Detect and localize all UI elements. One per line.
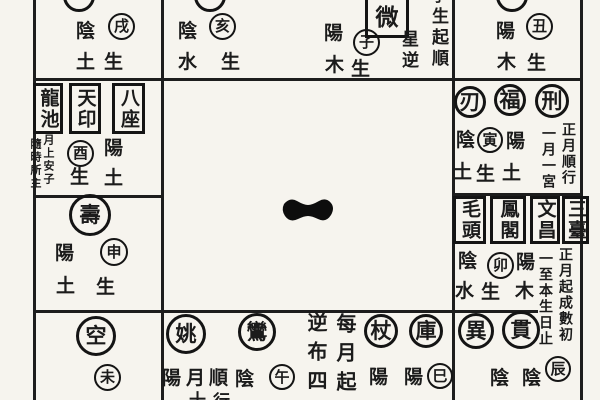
wenchang-box: 文昌	[530, 196, 560, 244]
chen-polarity-1: 陰	[490, 369, 509, 388]
star-shou-circle: 壽	[69, 194, 111, 236]
branch-chen: 辰	[550, 362, 565, 377]
santai-box: 三臺	[562, 196, 589, 244]
grid-vline-left-column	[161, 0, 164, 400]
shen-polarity: 陽	[55, 244, 74, 263]
yin-polarity-left: 陰	[456, 131, 475, 150]
longchi-label: 龍池	[39, 88, 58, 130]
bazuo-label: 八座	[119, 88, 138, 130]
wei-star-label: 微	[376, 7, 399, 30]
grid-hline-top-row	[33, 78, 582, 81]
bazuo-box: 八座	[112, 83, 145, 134]
branch-yin: 寅	[482, 133, 497, 148]
chou-polarity: 陽	[496, 22, 515, 41]
note-until-birth-day: 一至本生日止	[538, 251, 552, 347]
star-guan: 貫	[511, 320, 532, 341]
yin-element-left: 土	[453, 163, 472, 182]
xu-element: 土	[76, 53, 95, 72]
note-mei-yue-qi: 每月起	[335, 313, 355, 400]
maotou-box: 毛頭	[453, 196, 486, 244]
you-sheng: 生	[70, 168, 89, 187]
si-polarity-1: 陽	[369, 368, 388, 387]
note-partial-char: 子	[431, 0, 446, 7]
ink-blot	[281, 197, 335, 223]
branch-wei-circle: 未	[94, 364, 121, 391]
branch-mao-circle: 卯	[487, 252, 514, 279]
branch-shen: 申	[106, 245, 121, 260]
star-shou: 壽	[80, 205, 101, 226]
cut-text-fragment: 行	[213, 394, 230, 400]
star-xing: 刑	[542, 91, 563, 112]
branch-chen-circle: 辰	[545, 356, 571, 382]
note-one-month-one-palace: 一月一宮	[541, 126, 555, 190]
branch-wei: 未	[100, 370, 115, 385]
star-luan-circle: 鸞	[238, 313, 276, 351]
note-first-month-forward: 正月順行	[561, 122, 575, 186]
star-fu-circle: 福	[494, 84, 526, 116]
grid-hline-bottom-row	[33, 310, 538, 313]
hai-polarity: 陰	[178, 22, 197, 41]
si-polarity-2: 陽	[404, 368, 423, 387]
shen-sheng: 生	[96, 278, 115, 297]
star-fu: 福	[500, 90, 521, 111]
chen-polarity-2: 陰	[522, 369, 541, 388]
note-xing-ni: 星逆	[399, 30, 416, 72]
wu-char-4: 陰	[235, 370, 254, 389]
branch-shen-circle: 申	[100, 238, 128, 266]
chou-sheng: 生	[527, 54, 546, 73]
fengge-box: 鳳閣	[490, 196, 526, 244]
branch-hai-circle: 亥	[209, 13, 236, 40]
tianyin-box: 天印	[69, 83, 101, 134]
mao-polarity-left: 陰	[458, 252, 477, 271]
branch-xu-circle: 戌	[108, 13, 135, 40]
shen-element: 土	[56, 277, 75, 296]
mao-element-left: 水	[455, 282, 474, 301]
zi-element: 木	[325, 56, 344, 75]
note-count-from-first-month: 正月起成數初	[558, 247, 572, 343]
note-sheng-qi-shun: 生起順	[429, 7, 446, 70]
branch-yin-circle: 寅	[477, 127, 503, 153]
cut-star-circle	[496, 0, 528, 12]
yin-sheng: 生	[476, 165, 495, 184]
star-ku: 庫	[416, 321, 437, 342]
wenchang-label: 文昌	[536, 199, 555, 241]
star-yi: 異	[466, 321, 487, 342]
star-kong: 空	[86, 326, 107, 347]
zi-sheng: 生	[351, 60, 370, 79]
branch-you: 酉	[73, 146, 88, 161]
xu-sheng: 生	[104, 53, 123, 72]
star-yao-circle: 姚	[166, 314, 206, 354]
branch-xu: 戌	[114, 19, 129, 34]
chou-element: 木	[497, 53, 516, 72]
cut-star-circle	[194, 0, 226, 12]
xu-polarity: 陰	[76, 22, 95, 41]
star-zhang: 杖	[371, 321, 392, 342]
cut-star-circle	[63, 0, 95, 12]
star-ren: 刃	[460, 92, 481, 113]
star-yao: 姚	[176, 324, 197, 345]
mao-element-right: 木	[515, 282, 534, 301]
star-guan-circle: 貫	[502, 311, 540, 349]
hai-sheng: 生	[221, 53, 240, 72]
longchi-box: 龍池	[33, 83, 63, 134]
tianyin-label: 天印	[76, 88, 95, 130]
hai-element: 水	[178, 53, 197, 72]
wu-char-2: 月	[186, 369, 205, 388]
branch-si-circle: 巳	[427, 363, 453, 389]
branch-mao: 卯	[493, 258, 508, 273]
star-yi-circle: 異	[458, 313, 494, 349]
note-small-right: 月上安子	[43, 134, 54, 186]
yin-element-right: 土	[502, 164, 521, 183]
star-kong-circle: 空	[76, 316, 116, 356]
santai-label: 三臺	[566, 199, 585, 241]
fengge-label: 鳳閣	[499, 199, 518, 241]
branch-chou: 丑	[532, 19, 547, 34]
branch-si: 巳	[432, 369, 447, 384]
star-luan: 鸞	[247, 322, 268, 343]
mao-sheng: 生	[481, 283, 500, 302]
star-zhang-circle: 杖	[364, 314, 398, 348]
branch-you-circle: 酉	[67, 140, 94, 167]
cut-text-fragment: 十	[189, 393, 206, 400]
mao-polarity-right: 陽	[516, 253, 535, 272]
you-element: 土	[104, 169, 123, 188]
star-ku-circle: 庫	[409, 314, 443, 348]
astrology-chart-page: 陰 戌 土 生 陰 亥 水 生 陽 木 子 生 微 星逆 子 生起順 陽 丑 木…	[0, 0, 600, 400]
branch-wu-circle: 午	[269, 364, 295, 390]
note-small-left: 隨時所主	[30, 138, 41, 190]
wu-char-1: 陽	[162, 369, 181, 388]
zi-polarity: 陽	[324, 24, 343, 43]
you-polarity: 陽	[104, 139, 123, 158]
star-ren-circle: 刃	[454, 86, 486, 118]
wu-char-3: 順	[209, 369, 228, 388]
grid-vline-outer-left	[33, 0, 36, 400]
maotou-label: 毛頭	[460, 199, 479, 241]
yin-polarity-right: 陽	[506, 132, 525, 151]
branch-wu: 午	[274, 370, 289, 385]
star-xing-circle: 刑	[535, 84, 569, 118]
branch-chou-circle: 丑	[526, 13, 553, 40]
note-ni-bu-si: 逆布四	[306, 312, 326, 399]
branch-hai: 亥	[215, 19, 230, 34]
